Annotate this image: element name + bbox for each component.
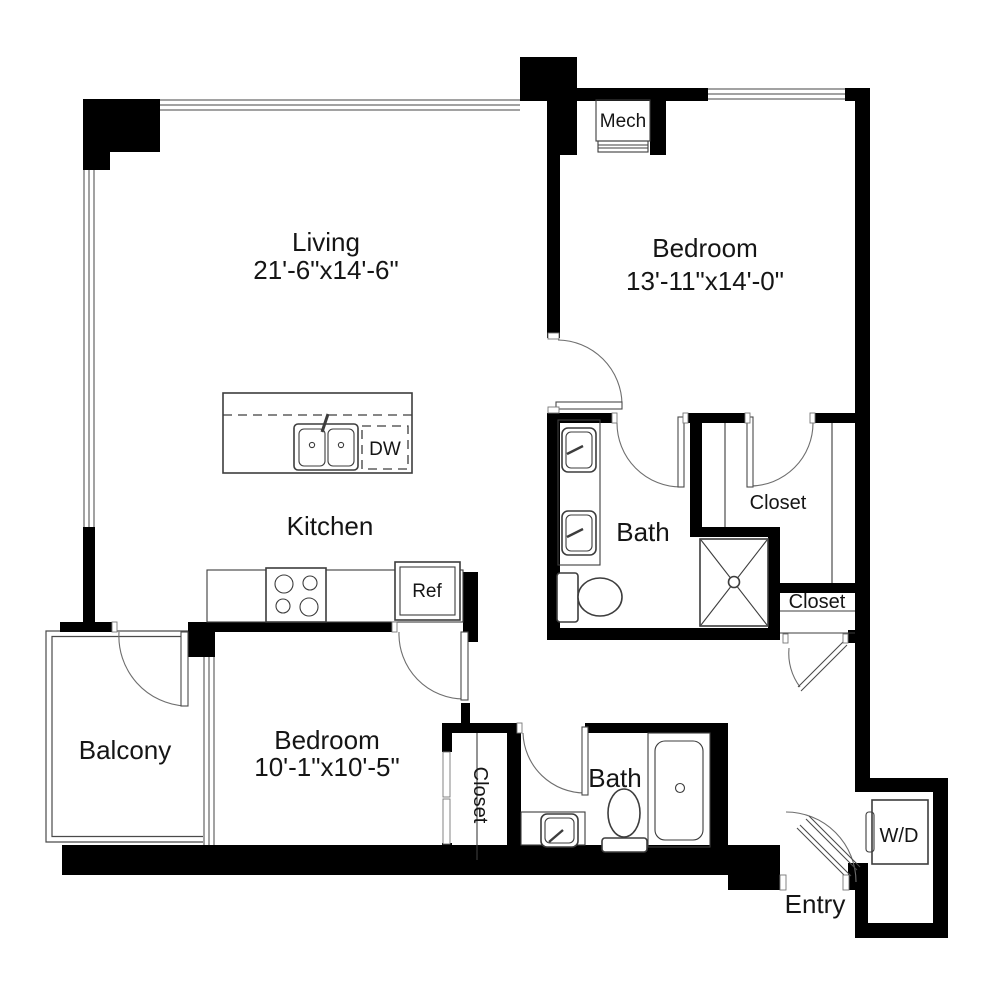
living-dims: 21'-6"x14'-6" bbox=[253, 255, 398, 285]
window-bedroom2-balcony bbox=[203, 657, 215, 845]
bath1-label: Bath bbox=[616, 517, 670, 547]
bedroom2-dims: 10'-1"x10'-5" bbox=[254, 752, 399, 782]
kitchen-island bbox=[223, 393, 412, 473]
stove bbox=[266, 568, 326, 622]
living-label: Living bbox=[292, 227, 360, 257]
shower bbox=[700, 539, 768, 626]
linen-closet-label: Closet bbox=[789, 591, 846, 613]
entry-label: Entry bbox=[785, 889, 846, 919]
window-left-living bbox=[83, 170, 95, 527]
refrigerator-label: Ref bbox=[412, 581, 442, 602]
bedroom2-closet-label: Closet bbox=[469, 767, 491, 824]
mech-label: Mech bbox=[600, 111, 646, 132]
walkin-closet-label: Closet bbox=[750, 492, 807, 514]
bedroom2-label: Bedroom bbox=[274, 725, 380, 755]
kitchen-label: Kitchen bbox=[287, 511, 374, 541]
bedroom1-dims: 13'-11"x14'-0" bbox=[626, 266, 784, 296]
balcony-label: Balcony bbox=[79, 735, 172, 765]
bedroom1-label: Bedroom bbox=[652, 233, 758, 263]
window-top-living bbox=[160, 99, 520, 112]
dishwasher-label: DW bbox=[369, 439, 401, 460]
floor-plan-drawing: Living 21'-6"x14'-6" Bedroom 13'-11"x14'… bbox=[0, 0, 1000, 1000]
bath2-label: Bath bbox=[588, 763, 642, 793]
washer-dryer-label: W/D bbox=[880, 825, 919, 847]
floor-plan: Living 21'-6"x14'-6" Bedroom 13'-11"x14'… bbox=[0, 0, 1000, 1000]
window-top-bedroom bbox=[708, 88, 845, 101]
